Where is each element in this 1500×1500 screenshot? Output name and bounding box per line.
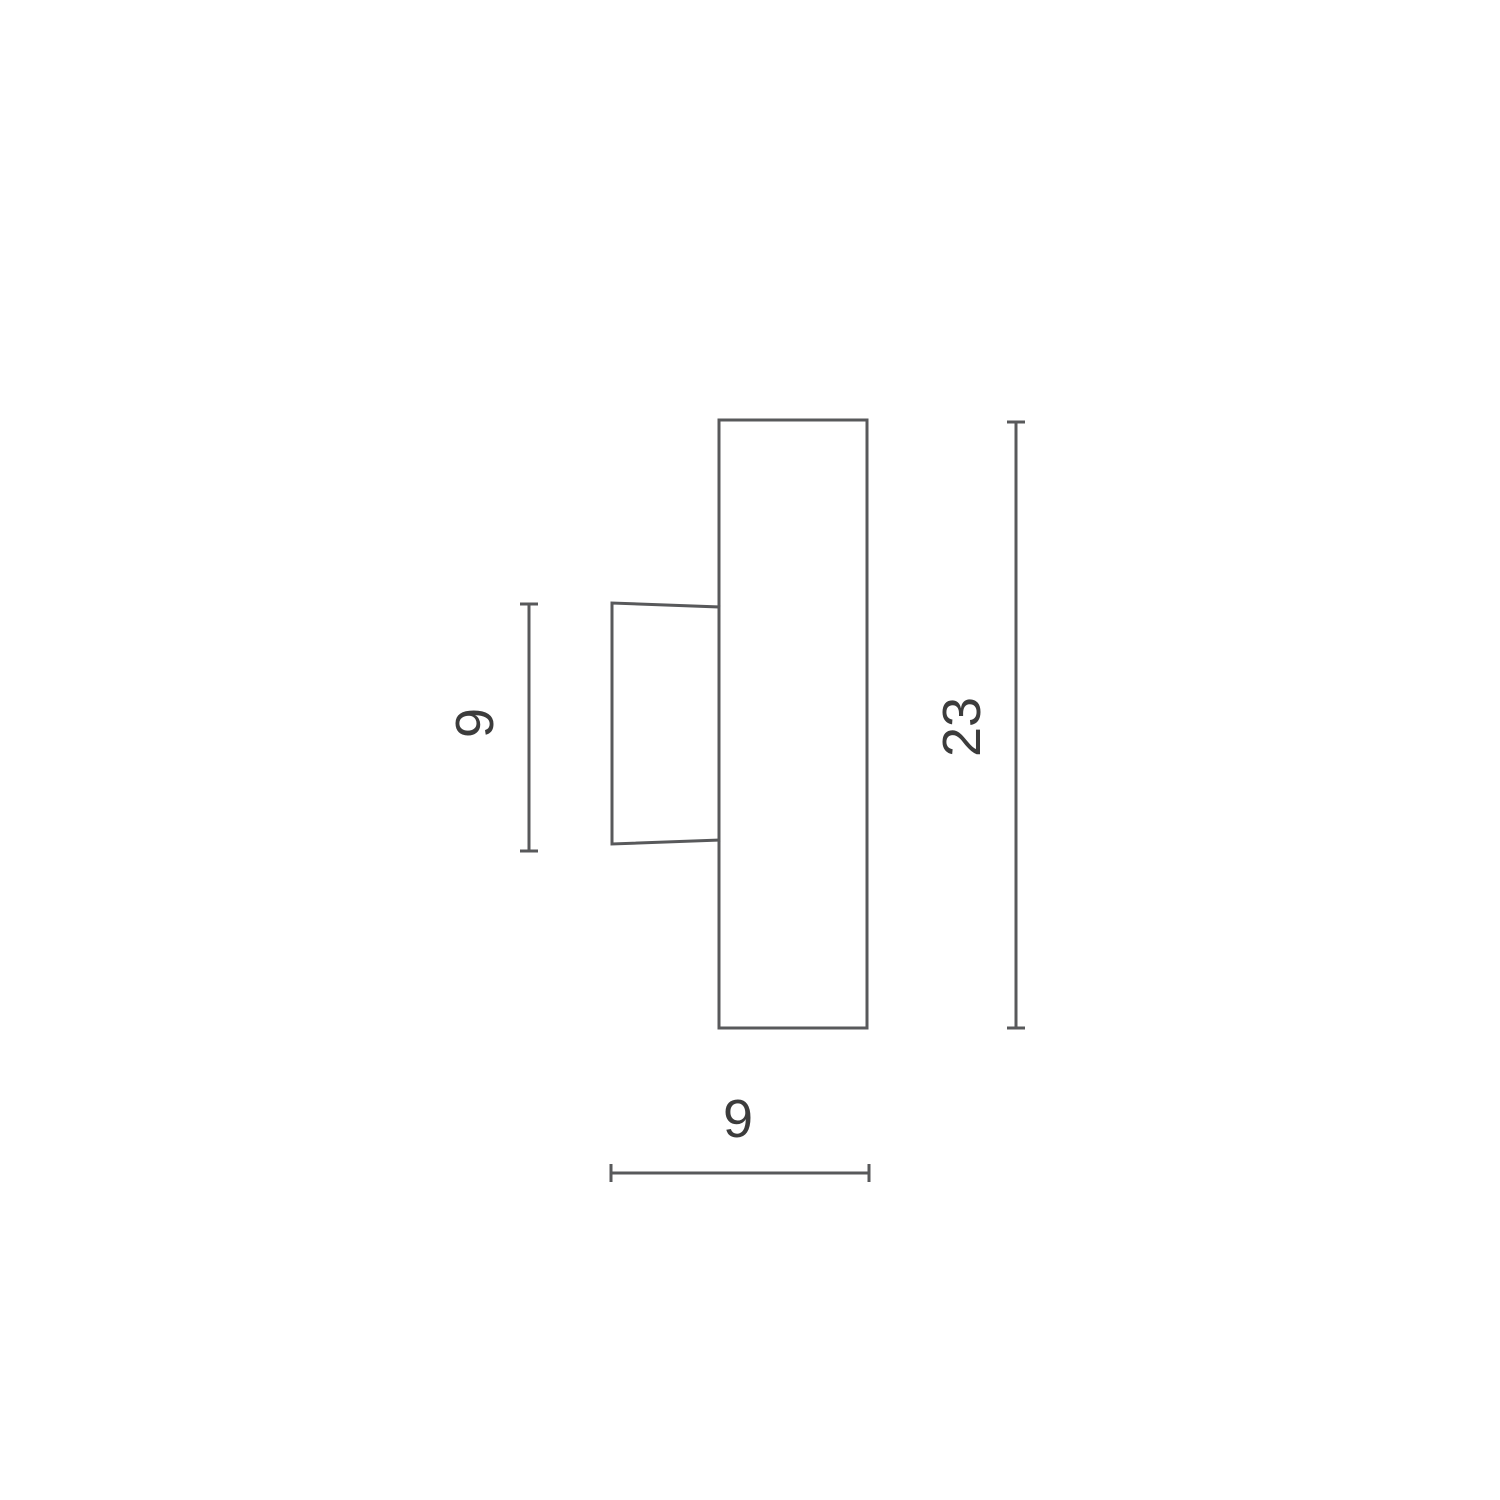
dimension-label-overall-height: 23 — [932, 697, 992, 757]
dimension-line-overall-height — [1007, 422, 1025, 1028]
dimension-line-bracket-height — [520, 604, 538, 851]
dimension-lines — [520, 422, 1025, 1182]
dimension-label-overall-depth: 9 — [723, 1089, 753, 1149]
dimension-label-bracket-height: 9 — [445, 708, 505, 738]
lamp-body-outline — [719, 420, 867, 1028]
dimension-diagram: 9 23 9 — [0, 0, 1500, 1500]
dimension-line-overall-depth — [611, 1164, 869, 1182]
drawing-canvas: 9 23 9 — [0, 0, 1500, 1500]
mount-bracket-outline — [612, 603, 719, 844]
object-outlines — [612, 420, 867, 1028]
